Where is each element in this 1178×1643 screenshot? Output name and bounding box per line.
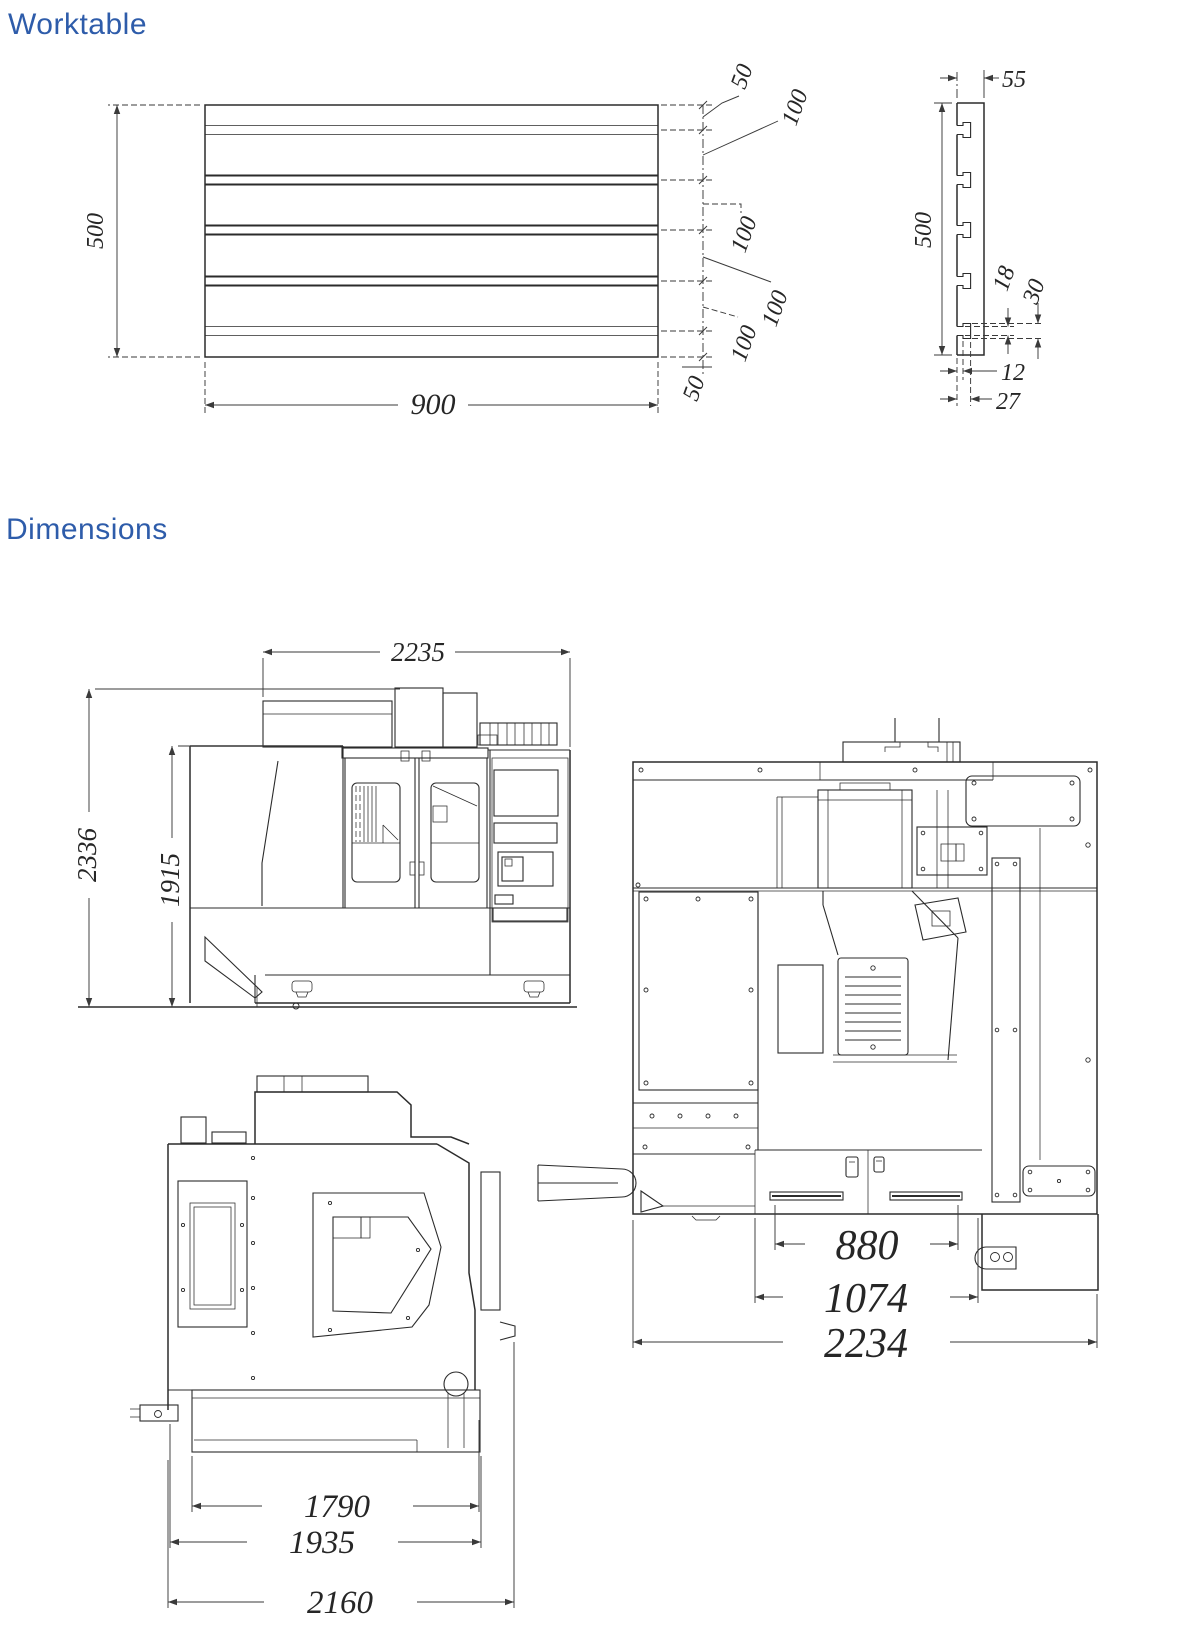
dim-label-slot-pitch-3: 100	[757, 287, 794, 330]
dim-label-front-width: 2235	[391, 637, 445, 667]
worktable-section-view: 55 500 18 30 12 27	[911, 67, 1051, 415]
machine-front-view: 2235 2336 1915	[72, 637, 577, 1009]
dim-label-slot-pitch-4: 100	[726, 322, 763, 365]
dim-label-tee-width: 30	[1018, 276, 1051, 308]
dim-label-side-mid-depth: 1935	[289, 1525, 355, 1561]
dim-label-side-overall-depth: 2160	[307, 1585, 374, 1621]
dim-label-section-width: 500	[911, 212, 937, 248]
dim-label-top-overall-width: 2234	[824, 1321, 908, 1367]
dim-label-slot-depth: 12	[1001, 360, 1025, 386]
dim-label-slot-pitch-2: 100	[726, 213, 763, 256]
dim-label-slot-pitch-1: 100	[777, 86, 814, 129]
worktable-top-view: 500 900 50 100 100 10	[83, 61, 814, 421]
dim-label-edge-50-bottom: 50	[678, 373, 711, 404]
dim-label-slot-width: 18	[988, 263, 1021, 294]
machine-side-view: 1790 1935 2160	[130, 1076, 515, 1621]
dim-label-table-width: 500	[83, 213, 109, 249]
dim-label-side-inner-depth: 1790	[304, 1489, 371, 1525]
dim-label-enclosure-height: 1915	[155, 853, 185, 907]
dim-label-total-depth: 27	[996, 389, 1021, 415]
dim-label-top-table-width: 880	[836, 1223, 899, 1269]
dim-label-edge-50-top: 50	[726, 61, 759, 92]
technical-drawing-canvas: 500 900 50 100 100 10	[0, 0, 1178, 1643]
dim-label-table-thickness: 55	[1002, 67, 1026, 93]
dim-label-top-saddle-width: 1074	[824, 1276, 908, 1322]
machine-top-view: 880 1074 2234	[538, 718, 1098, 1367]
spec-sheet-page: Worktable Dimensions 500	[0, 0, 1178, 1643]
dim-label-table-length: 900	[411, 388, 456, 421]
dim-label-total-height: 2336	[72, 828, 102, 883]
